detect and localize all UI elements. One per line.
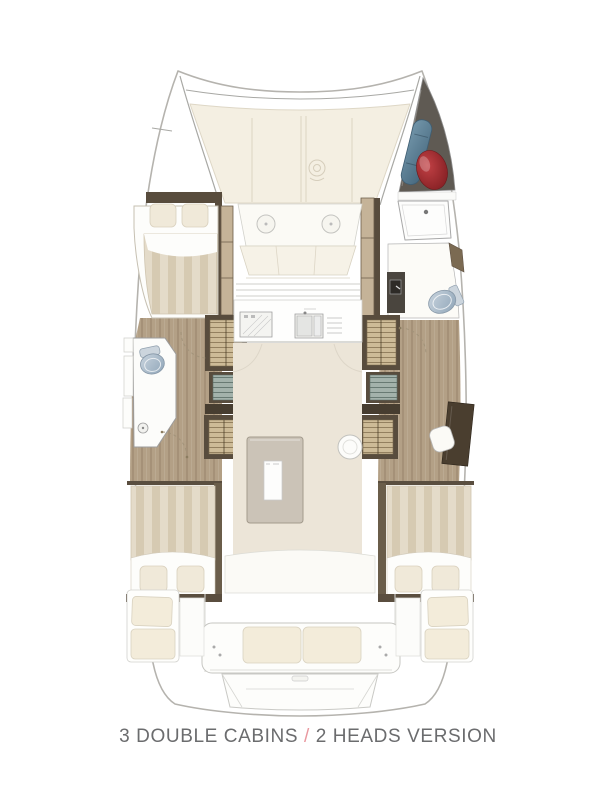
port-stern-seat	[127, 590, 179, 662]
stool	[338, 435, 362, 459]
pillow	[140, 566, 167, 592]
caption-slash: /	[298, 726, 316, 747]
layout-caption: 3 DOUBLE CABINS / 2 HEADS VERSION	[0, 726, 600, 748]
sink-icon	[390, 280, 401, 294]
forward-bench	[240, 246, 356, 278]
starboard-cockpit-step	[396, 598, 420, 656]
caption-part1: 3 DOUBLE CABINS	[119, 726, 298, 747]
floorplan-drawing	[0, 0, 600, 800]
port-cockpit-step	[180, 598, 204, 656]
caption-part2: 2 HEADS VERSION	[316, 726, 497, 747]
pillow	[150, 204, 176, 227]
bench-cushion	[243, 627, 301, 663]
port-fwd-shelf	[146, 192, 222, 203]
starboard-inner-wall	[374, 198, 380, 320]
port-forward-bed	[134, 204, 218, 318]
bench-cushion	[303, 627, 361, 663]
seat-cushion	[427, 596, 468, 626]
shower-head-icon	[424, 210, 428, 214]
starboard-wardrobe	[361, 198, 374, 320]
starboard-aft-bed	[378, 481, 474, 602]
port-side-lockers	[123, 338, 133, 428]
port-wardrobe	[221, 206, 233, 315]
stove-icon	[240, 312, 272, 337]
galley-counter	[234, 300, 362, 342]
saloon-table	[247, 437, 303, 523]
seat-cushion	[132, 596, 173, 626]
port-aft-bed	[126, 481, 222, 602]
pillow	[182, 204, 208, 227]
foredeck-panel	[190, 104, 410, 203]
starboard-shower	[398, 201, 451, 240]
seat-cushion	[425, 629, 469, 659]
pillow	[395, 566, 422, 592]
cockpit-bench	[202, 623, 400, 673]
swim-platform	[222, 674, 378, 710]
pillow	[177, 566, 204, 592]
starboard-stern-seat	[421, 590, 473, 662]
catamaran-floorplan-page: 3 DOUBLE CABINS / 2 HEADS VERSION	[0, 0, 600, 800]
pillow	[432, 566, 459, 592]
seat-cushion	[131, 629, 175, 659]
foredeck-hatch-panel	[238, 204, 362, 246]
aft-door-band	[225, 550, 375, 593]
